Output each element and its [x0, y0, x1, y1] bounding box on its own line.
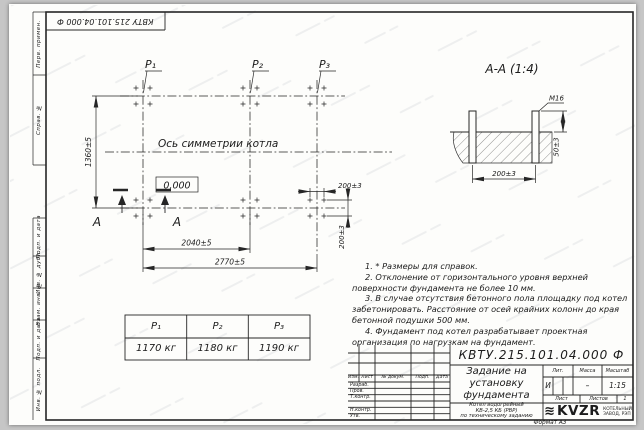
col-header-podp: Подп.: [411, 375, 434, 382]
margin-label-podp-data-bottom: Подп. и дата: [33, 320, 46, 358]
anchor-bolt-left: [469, 111, 476, 163]
load-table-value-p3: 1190 кг: [248, 338, 310, 360]
dim-bolt-x-200: 200±3: [338, 182, 362, 190]
dim-bolt-spacing-200: 200±3: [492, 170, 516, 178]
mass-header: Масса: [573, 365, 602, 377]
doc-title-line-2: установку: [450, 378, 543, 390]
load-label-p2: Р₂: [252, 58, 264, 71]
product-name: Котел водогрейный КВ-2,5 КБ (РВР) по тех…: [450, 403, 543, 420]
dim-span-2040: 2040±5: [181, 239, 211, 248]
manufacturer-logo: ≋ KVZR КОТЕЛЬНЫЙ ЗАВОД, РЭП: [543, 403, 633, 420]
margin-label-sprav-no: Справ. №: [33, 75, 46, 165]
mass-value: –: [573, 377, 602, 395]
margin-label-vzam-inv: Взам. инв. №: [33, 288, 46, 320]
col-header-dokum: № докум.: [375, 375, 411, 382]
load-table-header-p1: Р₁: [125, 315, 187, 338]
load-table-value-p2: 1180 кг: [187, 338, 248, 360]
corner-stamp: КВТУ 215.101.04.000 Ф: [46, 12, 165, 30]
col-header-list: Лист: [359, 375, 375, 382]
note-line: 1. * Размеры для справок.: [352, 261, 636, 272]
sig-row-tkontr: Т.контр.: [350, 396, 371, 401]
lit-header: Лит.: [543, 365, 573, 377]
logo-text: KVZR: [557, 405, 600, 419]
note-line: 2. Отклонение от горизонтального уровня …: [352, 272, 636, 294]
symmetry-axis-label: Ось симметрии котла: [158, 138, 278, 150]
title-block-designation: КВТУ.215.101.04.000 Ф: [450, 345, 633, 365]
logo-caption: КОТЕЛЬНЫЙ ЗАВОД, РЭП: [603, 407, 632, 417]
sig-row-razrab: Разраб.: [350, 384, 369, 389]
col-header-data: Дата: [434, 375, 450, 382]
margin-label-inv-podl: Инв. № подл.: [33, 358, 46, 420]
technical-notes: 1. * Размеры для справок. 2. Отклонение …: [352, 261, 636, 347]
scale-value: 1:15: [602, 377, 633, 395]
sig-row-prov: Пров.: [350, 390, 364, 395]
note-line: 3. В случае отсутствия бетонного пола пл…: [352, 293, 636, 325]
margin-label-perv-primen: Перв. примен.: [33, 12, 46, 75]
load-table-header-p2: Р₂: [187, 315, 248, 338]
logo-coil-icon: ≋: [544, 405, 554, 418]
corner-stamp-text: КВТУ 215.101.04.000 Ф: [57, 17, 154, 25]
sheet-label: Лист: [543, 395, 580, 403]
logo-caption-line: ЗАВОД, РЭП: [603, 412, 631, 417]
load-label-p3: Р₃: [319, 58, 331, 71]
sheets-value: 1: [617, 395, 633, 403]
dim-height-1360: 1360±5: [84, 137, 93, 167]
load-table-value-p1: 1170 кг: [125, 338, 187, 360]
lit-value: И: [543, 377, 553, 395]
section-view-title: А-А (1:4): [484, 62, 538, 76]
sig-row-utv: Утв.: [350, 415, 360, 420]
section-letter-right: А: [172, 215, 181, 229]
anchor-bolt-right: [532, 111, 539, 163]
load-table-header-p3: Р₃: [248, 315, 310, 338]
scale-header: Масштаб: [602, 365, 633, 377]
sig-row-nkontr: Н.контр.: [350, 409, 371, 414]
thread-callout-m16: М16: [549, 95, 564, 103]
col-header-izm: Изм.: [348, 375, 359, 382]
sheets-label: Листов: [580, 395, 617, 403]
format-note: Формат А3: [505, 420, 595, 427]
engineering-drawing-page: Р₁ Р₂ Р₃ Ось симметрии котла 0,000 1360±…: [0, 0, 644, 430]
load-label-p1: Р₁: [145, 58, 156, 71]
section-letter-left: А: [92, 215, 101, 229]
dim-span-2770: 2770±5: [215, 258, 245, 267]
doc-title-line-1: Задание на: [450, 366, 543, 378]
doc-title-line-3: фундамента: [450, 390, 543, 402]
dim-protrusion-50: 50±3: [553, 137, 561, 156]
dim-bolt-y-200: 200±3: [338, 225, 346, 249]
